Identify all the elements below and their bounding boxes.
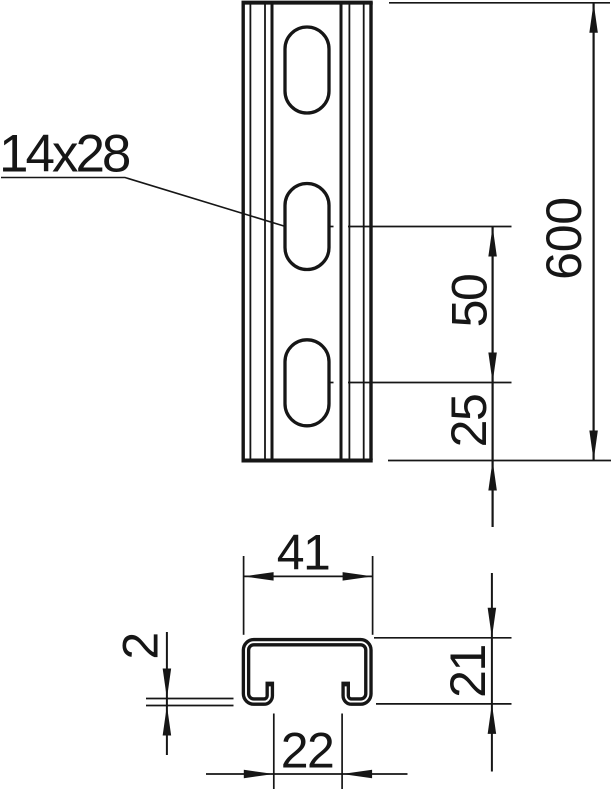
svg-text:14x28: 14x28 <box>0 125 130 184</box>
svg-text:50: 50 <box>442 275 498 328</box>
svg-text:2: 2 <box>112 633 168 659</box>
svg-text:600: 600 <box>536 197 592 280</box>
svg-text:21: 21 <box>440 645 496 698</box>
svg-text:41: 41 <box>277 525 330 581</box>
svg-text:22: 22 <box>281 723 334 779</box>
svg-text:25: 25 <box>441 395 497 448</box>
